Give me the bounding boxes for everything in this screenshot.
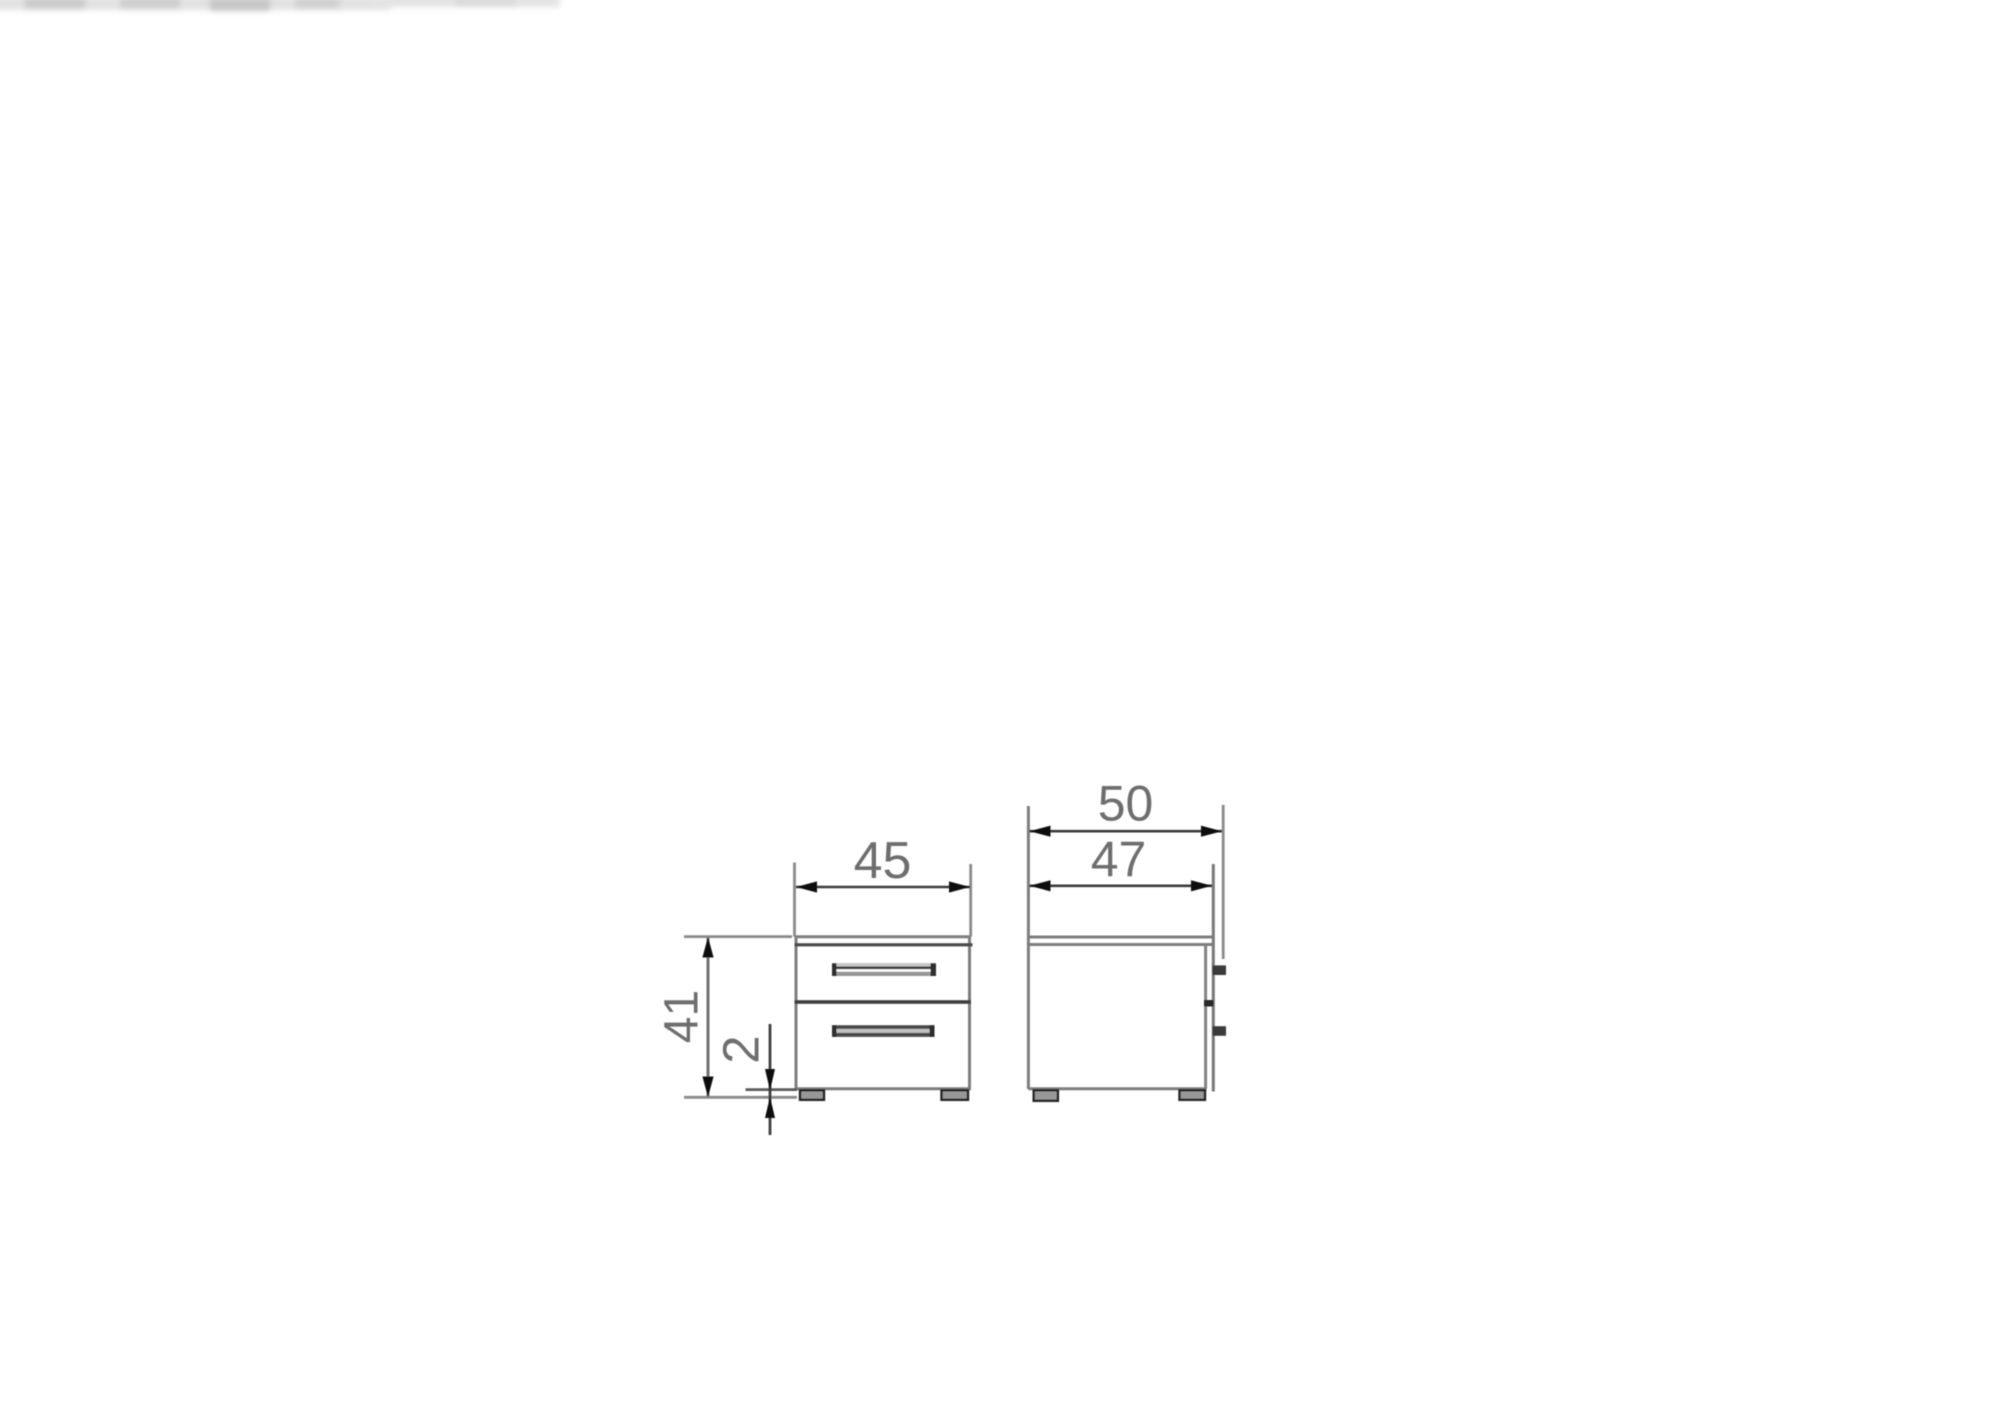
- svg-text:45: 45: [854, 832, 912, 890]
- svg-text:2: 2: [713, 1035, 770, 1063]
- svg-text:47: 47: [1091, 832, 1147, 888]
- svg-text:41: 41: [656, 990, 709, 1043]
- svg-text:50: 50: [1098, 776, 1154, 832]
